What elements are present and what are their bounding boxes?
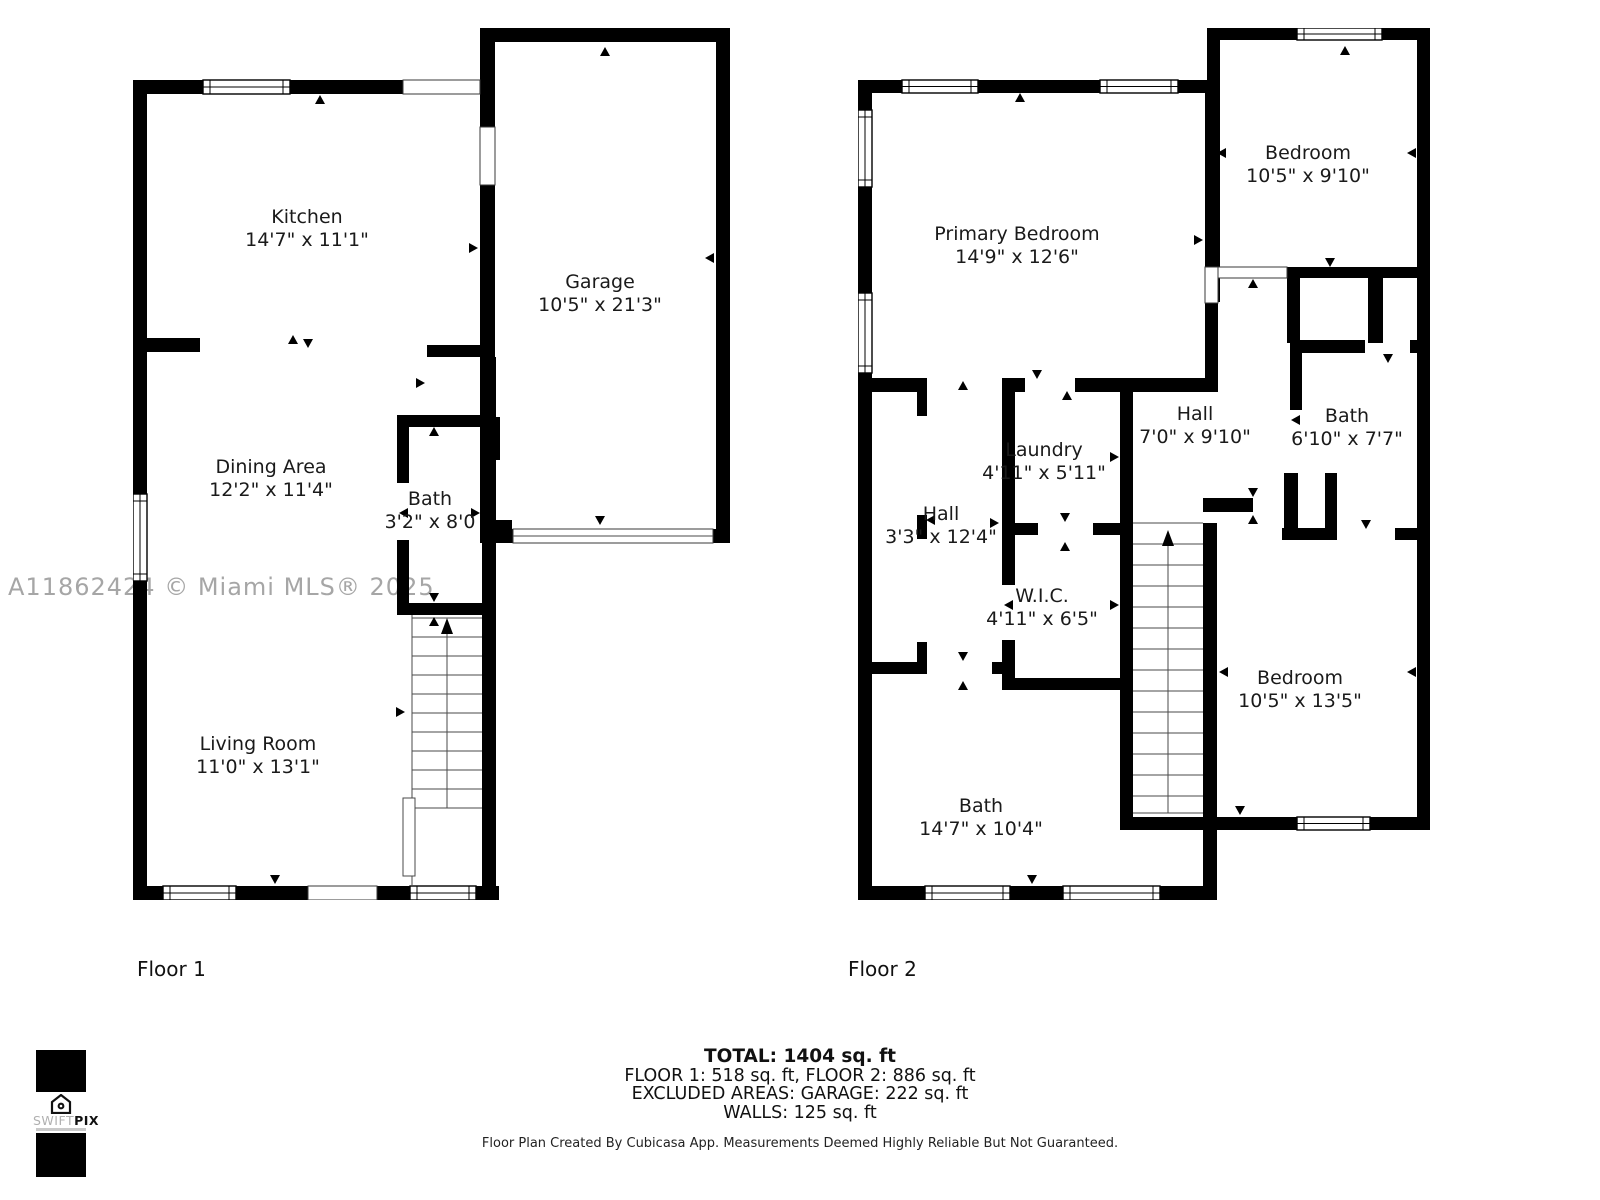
room-label-primary-bedroom: Primary Bedroom 14'9" x 12'6"	[934, 223, 1099, 269]
room-label-hall-lower: Hall 3'3" x 12'4"	[885, 503, 997, 549]
floor-plan-page: A11862424 © Miami MLS® 2025	[0, 0, 1600, 1200]
swiftpix-house-icon	[50, 1094, 72, 1114]
room-label-hall-upper: Hall 7'0" x 9'10"	[1139, 403, 1251, 449]
excluded-area-line: EXCLUDED AREAS: GARAGE: 222 sq. ft	[300, 1085, 1300, 1104]
swiftpix-logo: SWIFTPIX	[33, 1050, 89, 1177]
room-label-bath-upper: Bath 6'10" x 7'7"	[1291, 405, 1403, 451]
stairs-floor2	[1133, 523, 1203, 813]
room-label-bath-floor1: Bath 3'2" x 8'0	[385, 488, 476, 534]
room-label-garage: Garage 10'5" x 21'3"	[538, 271, 662, 317]
area-summary: TOTAL: 1404 sq. ft FLOOR 1: 518 sq. ft, …	[300, 1048, 1300, 1122]
room-label-bedroom-top: Bedroom 10'5" x 9'10"	[1246, 142, 1370, 188]
room-label-living-room: Living Room 11'0" x 13'1"	[196, 733, 320, 779]
room-label-kitchen: Kitchen 14'7" x 11'1"	[245, 206, 369, 252]
total-area-line: TOTAL: 1404 sq. ft	[300, 1048, 1300, 1067]
logo-tagline-bar	[36, 1128, 86, 1131]
logo-top-square	[36, 1050, 86, 1092]
floors-area-line: FLOOR 1: 518 sq. ft, FLOOR 2: 886 sq. ft	[300, 1067, 1300, 1086]
floor1-caption: Floor 1	[137, 957, 206, 981]
disclaimer-line: Floor Plan Created By Cubicasa App. Meas…	[300, 1136, 1300, 1151]
swiftpix-wordmark: SWIFTPIX	[33, 1114, 89, 1127]
stairs-floor1	[403, 615, 482, 886]
room-label-bedroom-bottom: Bedroom 10'5" x 13'5"	[1238, 667, 1362, 713]
floor2-caption: Floor 2	[848, 957, 917, 981]
room-label-laundry: Laundry 4'11" x 5'11"	[982, 439, 1106, 485]
room-label-dining-area: Dining Area 12'2" x 11'4"	[209, 456, 333, 502]
logo-bottom-square	[36, 1133, 86, 1177]
room-label-wic: W.I.C. 4'11" x 6'5"	[986, 585, 1098, 631]
room-label-bath-lower: Bath 14'7" x 10'4"	[919, 795, 1043, 841]
walls-area-line: WALLS: 125 sq. ft	[300, 1104, 1300, 1123]
